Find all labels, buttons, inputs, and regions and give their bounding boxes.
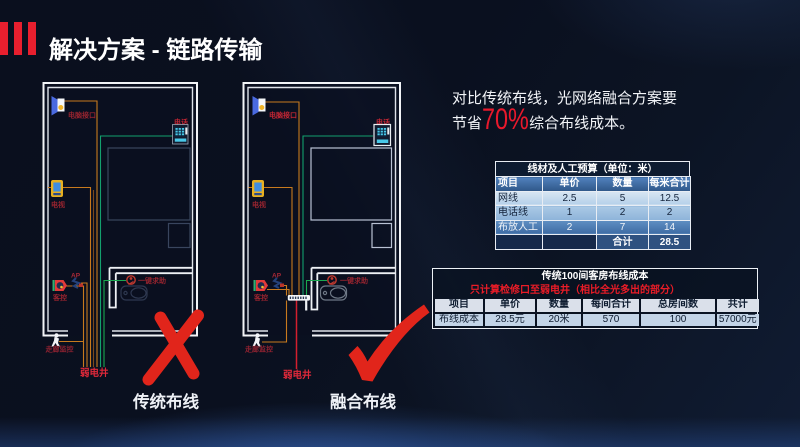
svg-text:走廊监控: 走廊监控 <box>46 345 74 354</box>
svg-text:客控: 客控 <box>52 293 67 302</box>
svg-text:弱电井: 弱电井 <box>283 369 312 381</box>
svg-text:走廊监控: 走廊监控 <box>245 345 273 354</box>
svg-text:客控: 客控 <box>253 293 268 302</box>
svg-text:电脑接口: 电脑接口 <box>68 111 96 120</box>
svg-text:一键求助: 一键求助 <box>138 276 166 285</box>
svg-text:电脑接口: 电脑接口 <box>269 111 297 120</box>
svg-text:电视: 电视 <box>252 200 266 209</box>
svg-text:弱电井: 弱电井 <box>80 367 109 379</box>
svg-text:电视: 电视 <box>51 200 65 209</box>
svg-text:一键求助: 一键求助 <box>340 276 368 285</box>
svg-text:传统布线: 传统布线 <box>132 392 200 412</box>
svg-text:融合布线: 融合布线 <box>330 392 397 412</box>
